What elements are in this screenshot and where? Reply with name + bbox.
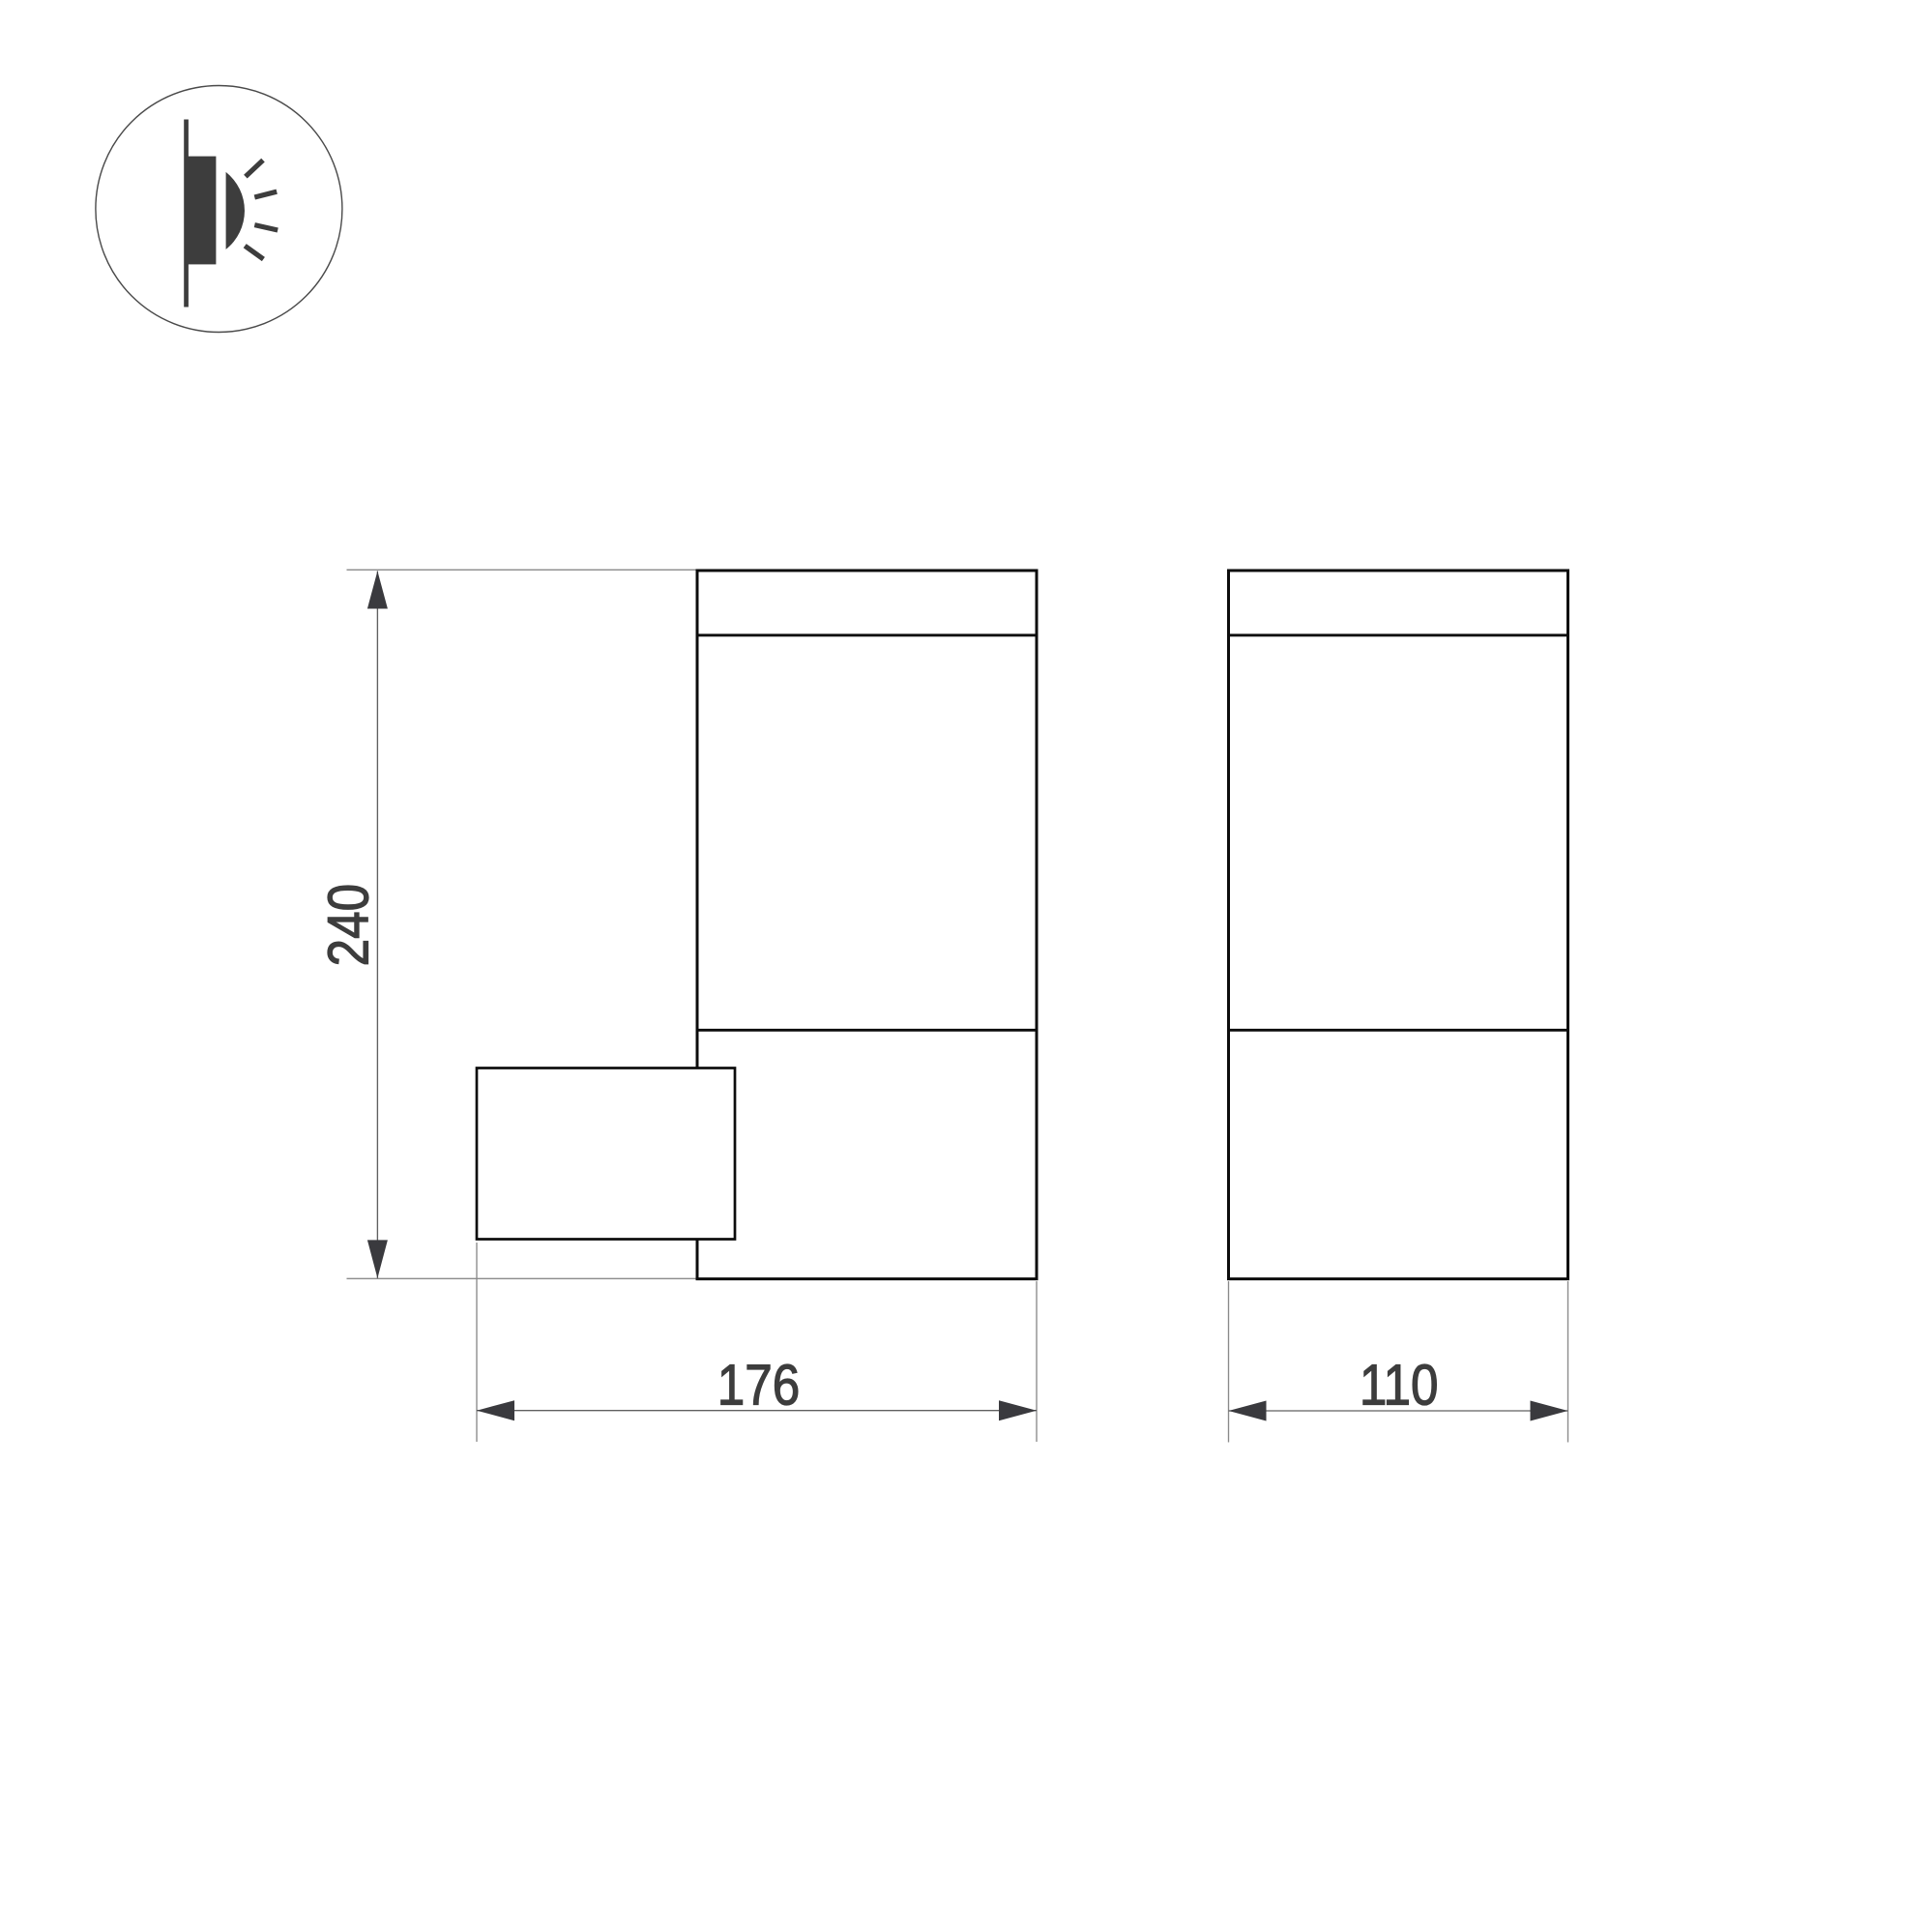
svg-text:110: 110 <box>1360 1353 1439 1417</box>
svg-text:176: 176 <box>717 1353 800 1417</box>
svg-text:240: 240 <box>316 884 380 966</box>
